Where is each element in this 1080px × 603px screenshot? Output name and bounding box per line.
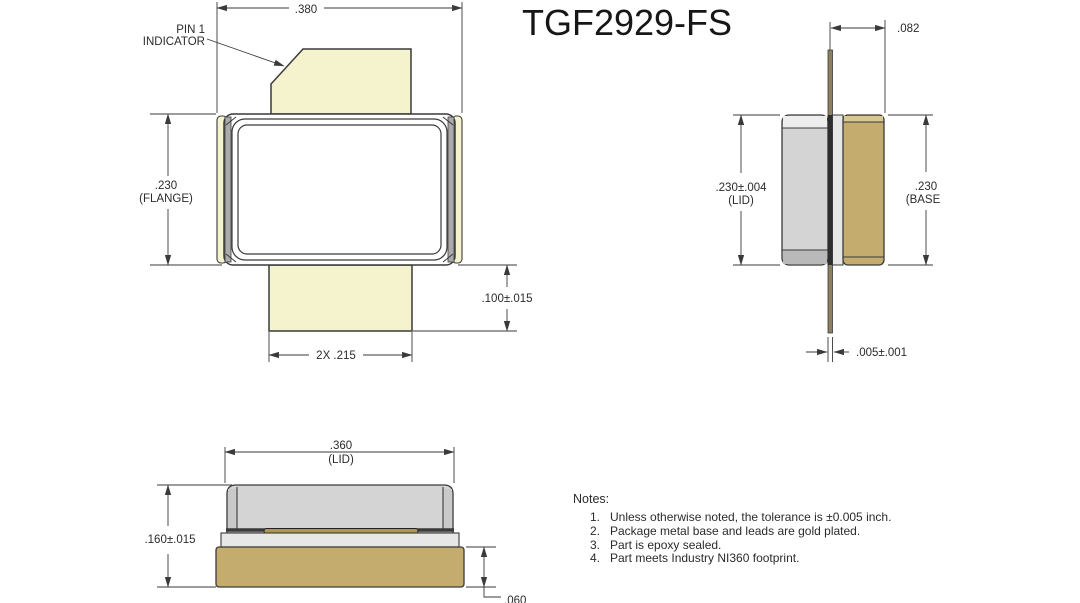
dim-lid-height-text: .230±.004 — [715, 182, 767, 194]
dim-lead-length: .100±.015 — [413, 265, 533, 331]
dim-overall-width-text: .380 — [295, 4, 317, 16]
dim-lid-height: .230±.004 (LID) — [715, 115, 780, 265]
part-number-title: TGF2929-FS — [522, 2, 732, 43]
dim-lead-width-text: 2X .215 — [316, 350, 356, 362]
front-lid — [227, 485, 453, 533]
dim-base-height-label: (BASE — [906, 194, 941, 206]
front-lid-side-left — [228, 489, 237, 531]
notes-heading: Notes: — [573, 492, 609, 506]
side-lid-bottom-band — [783, 250, 827, 264]
dim-lead-length-text: .100±.015 — [481, 293, 532, 305]
dim-flange-text: .230 — [155, 180, 177, 192]
front-ceramic — [221, 533, 459, 547]
dim-lead-width: 2X .215 — [269, 332, 412, 362]
dim-base-thickness-text: .060 — [504, 595, 526, 603]
dim-base-height: .230 (BASE — [888, 115, 941, 265]
dim-lead-offset-text: .082 — [897, 23, 919, 35]
pin1-label-line2: INDICATOR — [143, 36, 205, 48]
top-lead-pin1 — [271, 49, 411, 114]
dim-flange: .230 (FLANGE) — [139, 114, 222, 265]
side-base — [843, 115, 884, 265]
front-lid-side-right — [443, 489, 452, 531]
note-1-number: 1. — [590, 510, 600, 524]
notes-block: Notes: 1. Unless otherwise noted, the to… — [573, 492, 891, 565]
dim-lead-thickness: .005±.001 — [806, 337, 907, 362]
dim-lead-thickness-text: .005±.001 — [856, 347, 907, 359]
top-view: PIN 1 INDICATOR .380 .230 (FLANGE) .100±… — [139, 2, 532, 362]
drawing-sheet: PIN 1 INDICATOR .380 .230 (FLANGE) .100±… — [0, 0, 1080, 603]
side-base-top-band — [844, 116, 883, 122]
dim-lead-offset: .082 — [830, 20, 919, 113]
note-1-text: Unless otherwise noted, the tolerance is… — [610, 510, 891, 524]
pin1-leader-line — [207, 39, 284, 66]
lid-edge-right — [448, 117, 454, 262]
dim-base-height-text: .230 — [915, 181, 937, 193]
dim-lid-width-label: (LID) — [328, 454, 354, 466]
note-3-number: 3. — [590, 538, 600, 552]
side-lid-top-band — [783, 116, 827, 128]
side-view: .082 .230±.004 (LID) .230 (BASE .005±.00… — [715, 20, 940, 362]
mechanical-drawing-svg: PIN 1 INDICATOR .380 .230 (FLANGE) .100±… — [0, 0, 1080, 603]
lid-edge-left — [225, 117, 231, 262]
lid-rim-outer — [232, 119, 447, 260]
dim-base-thickness: .060 — [466, 547, 526, 603]
dim-lid-height-label: (LID) — [728, 195, 754, 207]
dim-overall-height-text: .160±.015 — [144, 534, 195, 546]
bottom-lead — [269, 265, 412, 331]
note-4-number: 4. — [590, 551, 600, 565]
pin1-label-line1: PIN 1 — [176, 24, 205, 36]
front-base — [216, 547, 464, 587]
side-lid — [782, 115, 828, 265]
side-ceramic — [833, 115, 844, 265]
note-2-number: 2. — [590, 524, 600, 538]
pin1-callout: PIN 1 INDICATOR — [143, 24, 284, 66]
note-2-text: Package metal base and leads are gold pl… — [610, 524, 860, 538]
dim-lid-width-text: .360 — [330, 440, 352, 452]
side-lead-dark-section — [828, 115, 833, 265]
dim-lid-width: .360 (LID) — [225, 440, 454, 483]
front-view: .360 (LID) .160±.015 .060 — [144, 440, 526, 603]
dim-flange-label: (FLANGE) — [139, 193, 193, 205]
note-3-text: Part is epoxy sealed. — [610, 538, 721, 552]
note-4-text: Part meets Industry NI360 footprint. — [610, 551, 799, 565]
